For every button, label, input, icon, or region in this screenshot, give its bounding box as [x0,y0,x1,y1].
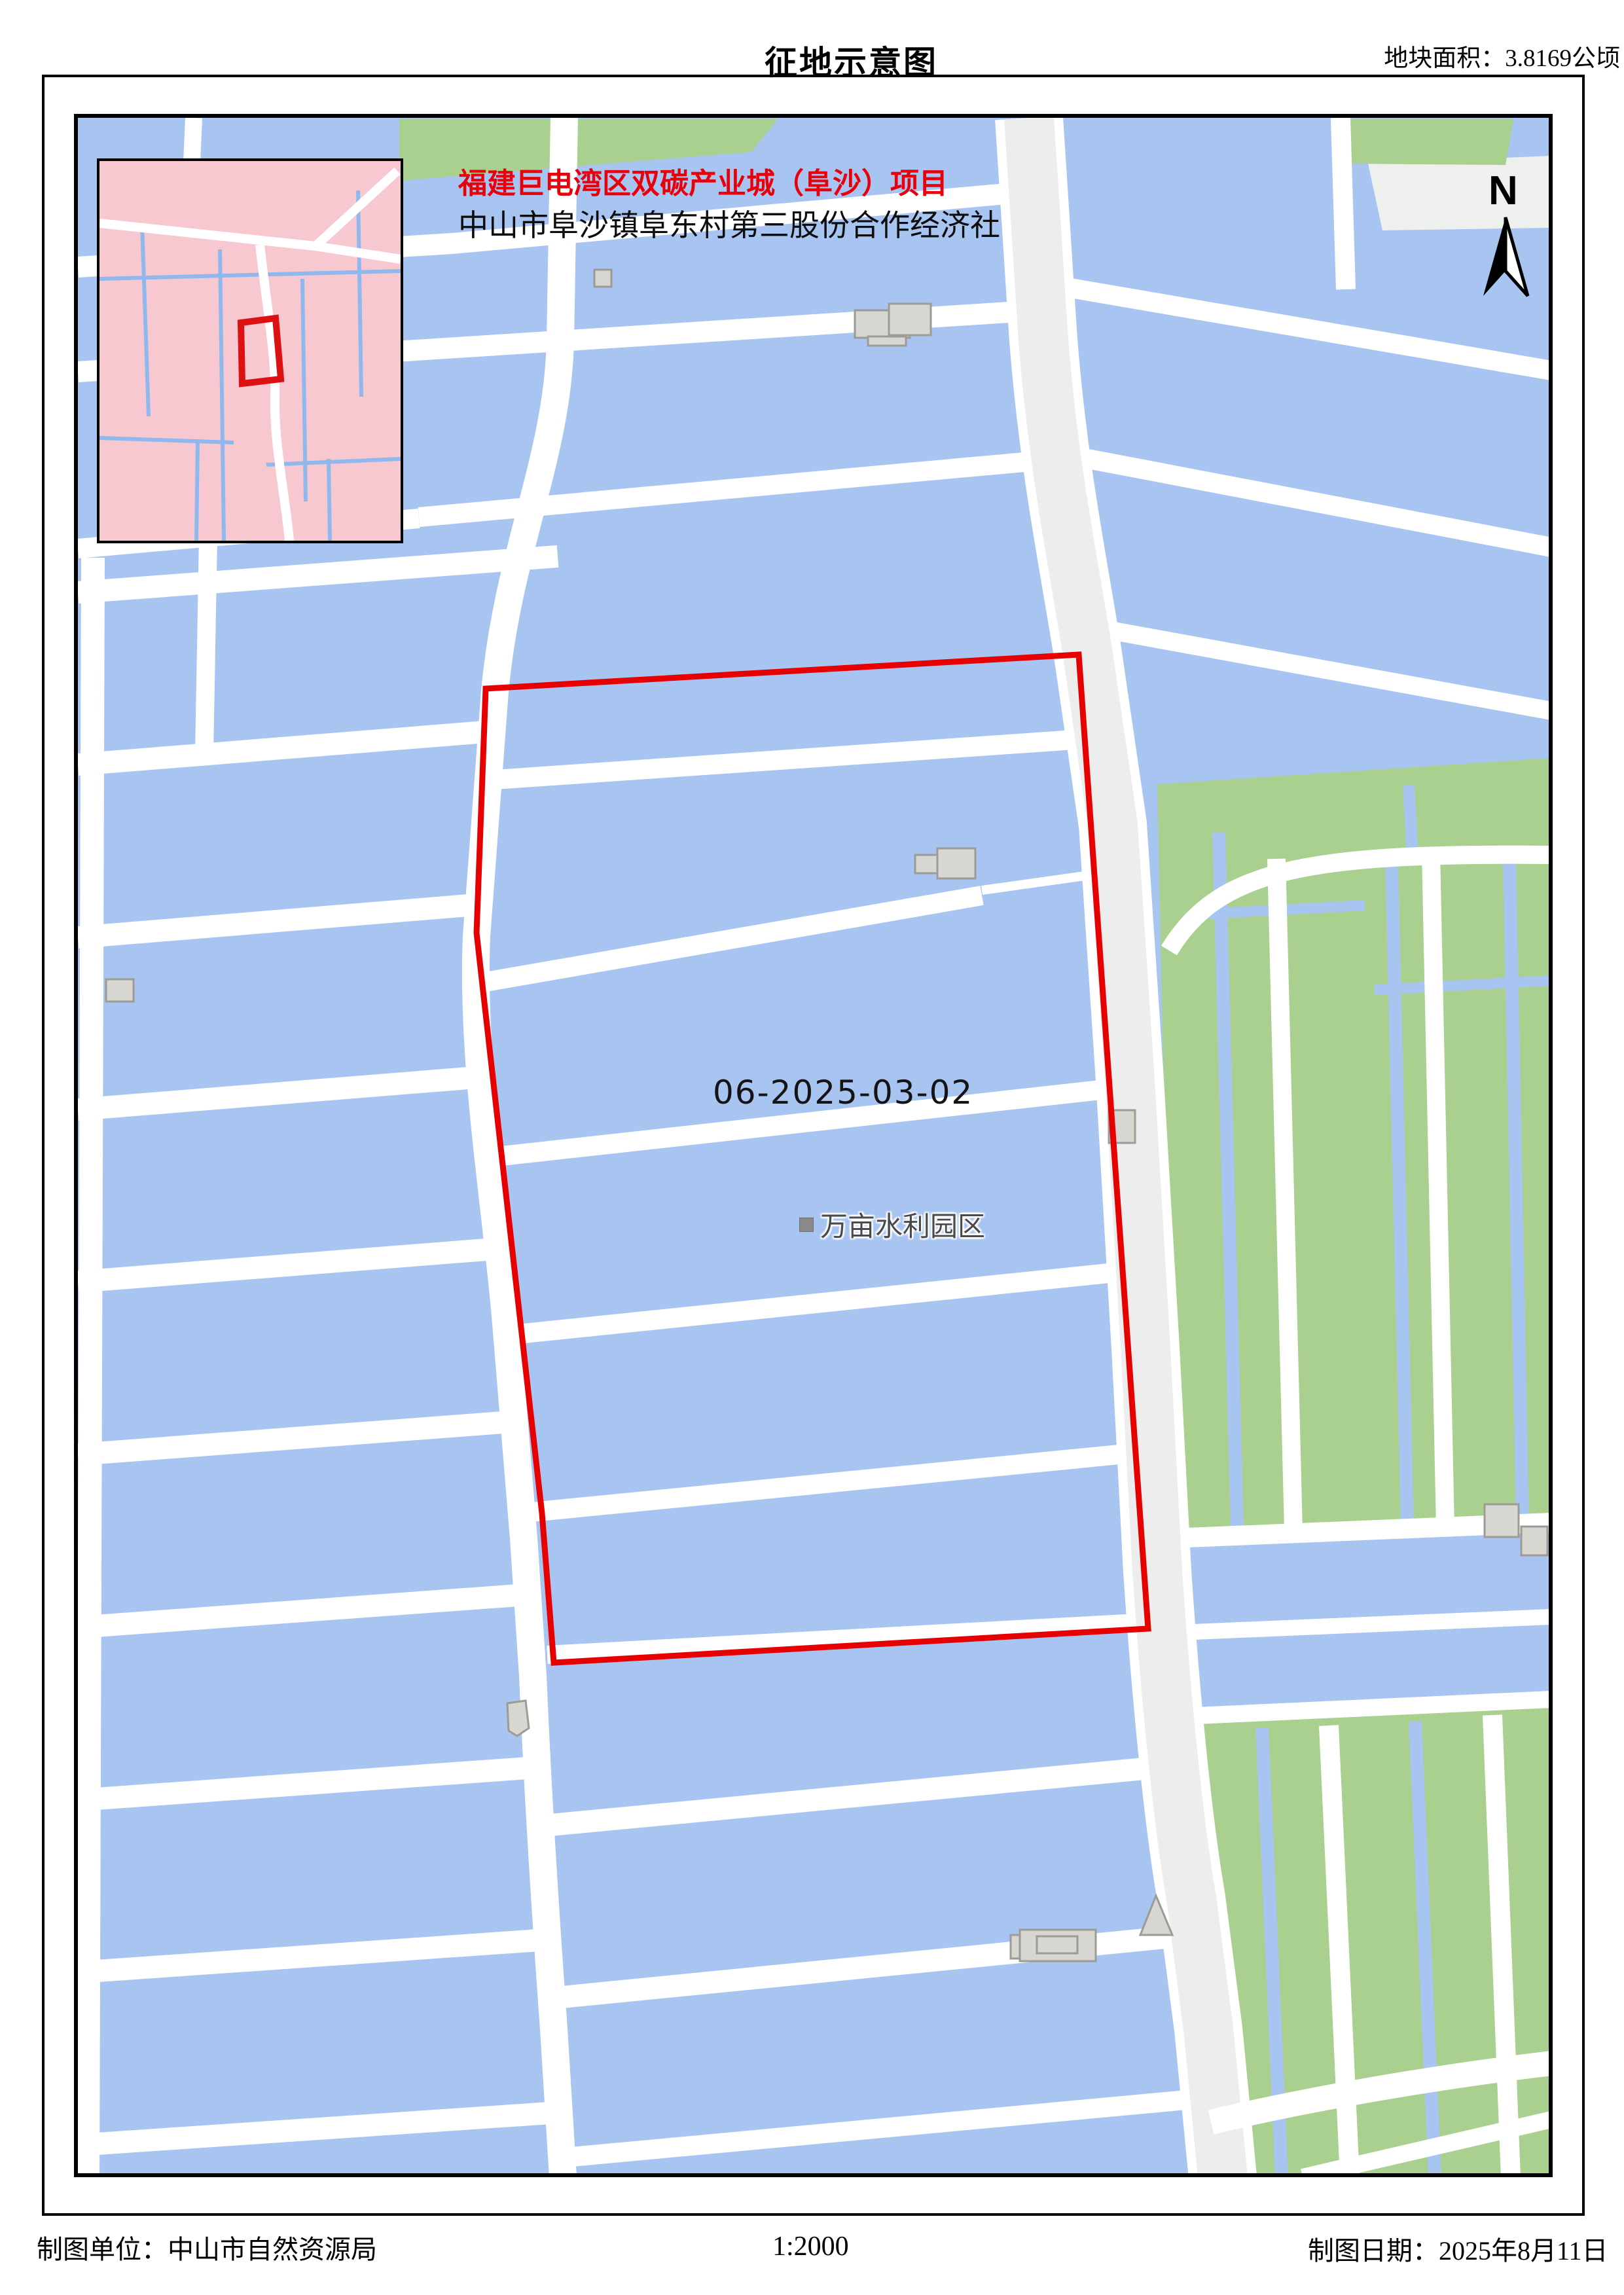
project-subtitle: 中山市阜沙镇阜东村第三股份合作经济社 [458,202,1000,245]
inset-canvas [99,161,401,541]
footer-agency: 制图单位：中山市自然资源局 [37,2228,377,2266]
sheet: 征地示意图 地块面积：3.8169公顷 [0,0,1624,2295]
poi-label: 万亩水利园区 [799,1204,985,1244]
poi-label-text: 万亩水利园区 [820,1210,985,1242]
map-frame: N [74,114,1553,2177]
parcel-id-text: 06-2025-03-02 [713,1074,973,1111]
footer-scale: 1:2000 [772,2231,849,2262]
north-arrow-label: N [1489,168,1518,213]
inset-locator-map [97,158,403,543]
parcel-area-label: 地块面积：3.8169公顷 [1384,38,1620,73]
road-junction-area [1368,156,1549,230]
parcel-id-label: 06-2025-03-02 [713,1074,973,1111]
project-title: 福建巨电湾区双碳产业城（阜沙）项目 [458,160,948,202]
footer-date: 制图日期：2025年8月11日 [1308,2230,1608,2268]
poi-marker-icon [799,1218,814,1232]
